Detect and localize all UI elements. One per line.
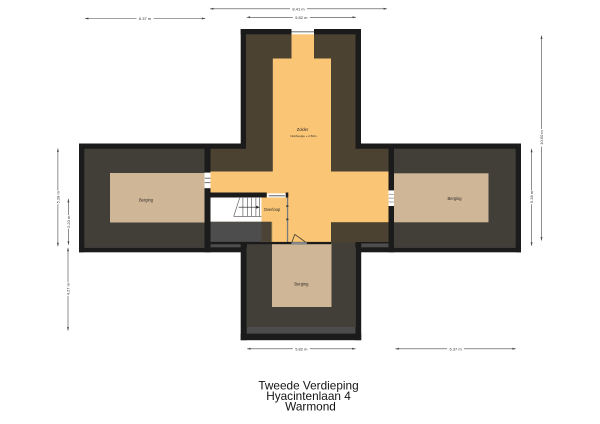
svg-text:Zolder: Zolder	[297, 127, 309, 132]
svg-text:5.28 m: 5.28 m	[529, 190, 534, 203]
svg-text:4.27 m: 4.27 m	[66, 282, 71, 295]
svg-text:5.82 m: 5.82 m	[295, 347, 308, 352]
svg-text:2.20 m: 2.20 m	[66, 215, 71, 228]
svg-text:10.50 m: 10.50 m	[539, 130, 544, 145]
svg-text:Warmond: Warmond	[285, 400, 336, 414]
svg-text:Berging: Berging	[139, 198, 154, 203]
svg-text:6.37 m: 6.37 m	[139, 16, 152, 21]
svg-text:8.41 m: 8.41 m	[292, 7, 305, 12]
svg-text:5.28 m: 5.28 m	[56, 191, 61, 204]
svg-text:Overloop: Overloop	[264, 207, 281, 212]
svg-text:Berging: Berging	[294, 281, 309, 286]
svg-text:6.37 m: 6.37 m	[449, 347, 462, 352]
svg-text:5.82 m: 5.82 m	[295, 15, 308, 20]
svg-text:Berging: Berging	[447, 196, 462, 201]
svg-text:Nokhoogte + 2.84m: Nokhoogte + 2.84m	[290, 134, 317, 138]
